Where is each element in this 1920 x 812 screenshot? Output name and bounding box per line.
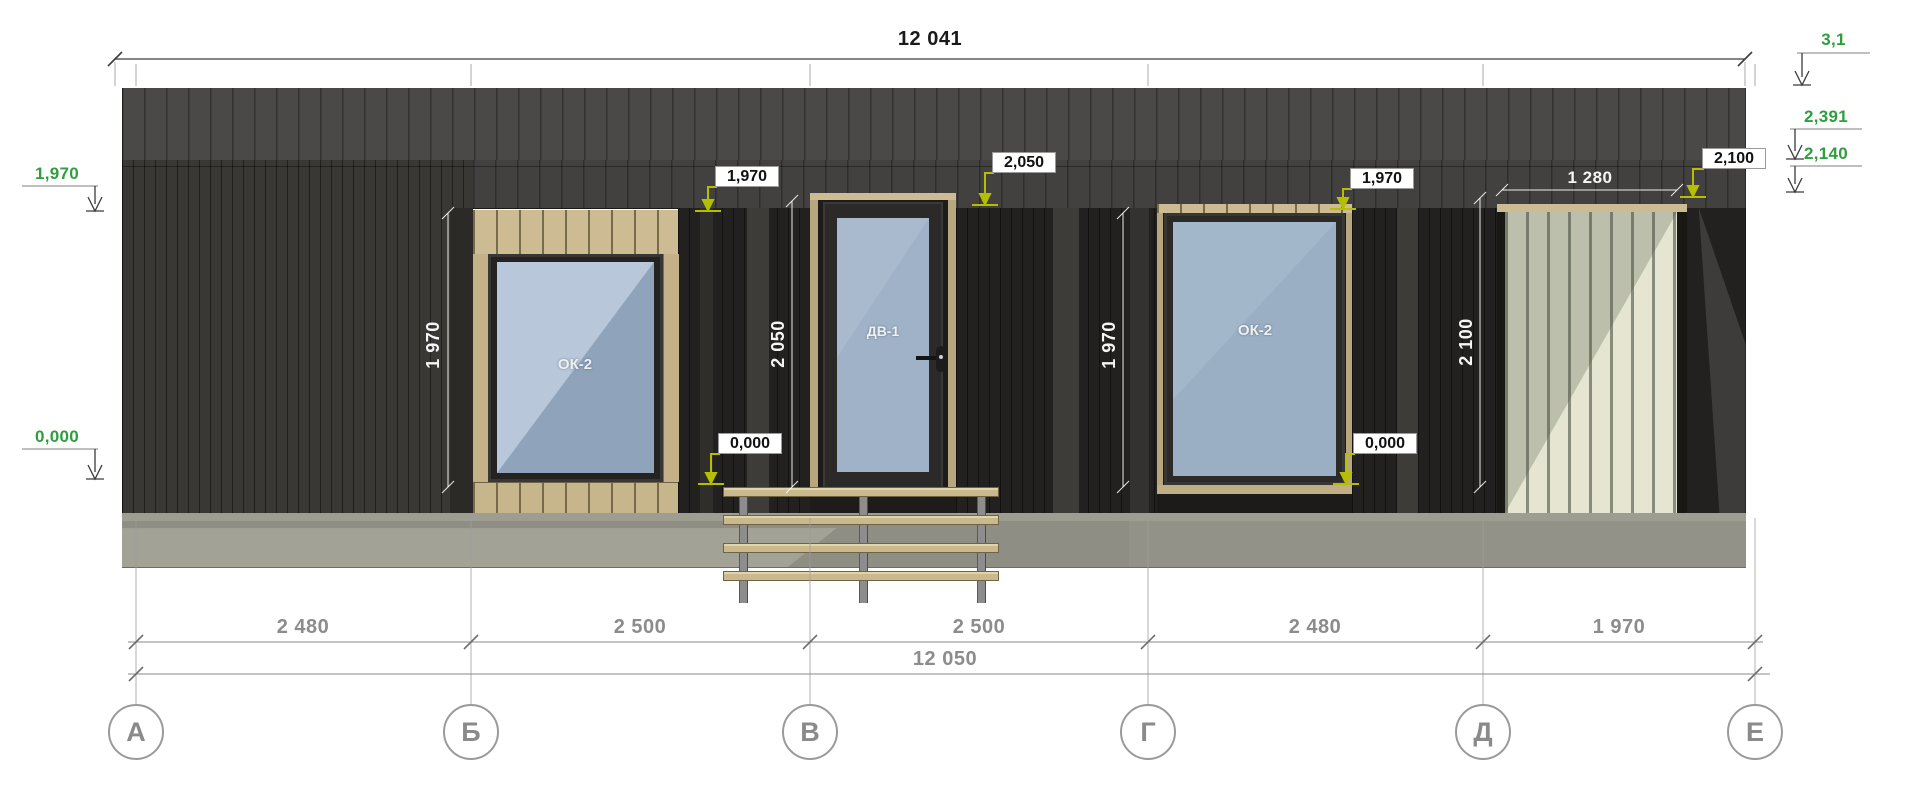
- elevation-mark-left-1970: 1,970: [18, 164, 96, 184]
- height-dim-window1: 1 970: [423, 295, 445, 395]
- span-label-vg: 2 500: [919, 616, 1039, 639]
- grid-axis-bubble-b: Б: [443, 704, 499, 760]
- height-dim-panel: 2 100: [1456, 292, 1478, 392]
- level-callout-1970-a: 1,970: [715, 166, 779, 187]
- grid-axis-bubble-d: Д: [1455, 704, 1511, 760]
- height-dim-window2: 1 970: [1099, 295, 1121, 395]
- grid-axis-bubble-a: А: [108, 704, 164, 760]
- vertical-dimension-lines: [442, 184, 1683, 493]
- elevation-drawing: ОК-2 ДВ-1 ОК-2: [0, 0, 1920, 812]
- span-label-ab: 2 480: [243, 616, 363, 639]
- top-total-dimension-label: 12 041: [850, 28, 1010, 51]
- top-extension-lines: [115, 62, 1755, 86]
- level-callout-2100: 2,100: [1702, 148, 1766, 169]
- level-callout-1970-b: 1,970: [1350, 168, 1414, 189]
- elevation-mark-left-0000: 0,000: [18, 427, 96, 447]
- grid-axis-bubble-g: Г: [1120, 704, 1176, 760]
- top-dimension-line: [108, 52, 1752, 66]
- level-callout-0000-a: 0,000: [718, 433, 782, 454]
- dimension-linework: [0, 0, 1920, 812]
- axis-lines: [136, 518, 1755, 704]
- elevation-mark-right-2140: 2,140: [1790, 144, 1862, 164]
- elevation-mark-right-31: 3,1: [1797, 30, 1870, 50]
- grid-axis-bubble-v: В: [782, 704, 838, 760]
- grid-axis-bubble-e: Е: [1727, 704, 1783, 760]
- span-label-bv: 2 500: [580, 616, 700, 639]
- panel-width-dimension: 1 280: [1540, 168, 1640, 188]
- elevation-marker-arrows: [22, 53, 1870, 479]
- span-label-gd: 2 480: [1255, 616, 1375, 639]
- height-dim-door: 2 050: [768, 294, 790, 394]
- level-callout-2050: 2,050: [992, 152, 1056, 173]
- elevation-mark-right-2391: 2,391: [1790, 107, 1862, 127]
- bottom-total-dimension-label: 12 050: [885, 648, 1005, 671]
- callout-leaders: [695, 169, 1706, 484]
- level-callout-0000-b: 0,000: [1353, 433, 1417, 454]
- span-label-de: 1 970: [1559, 616, 1679, 639]
